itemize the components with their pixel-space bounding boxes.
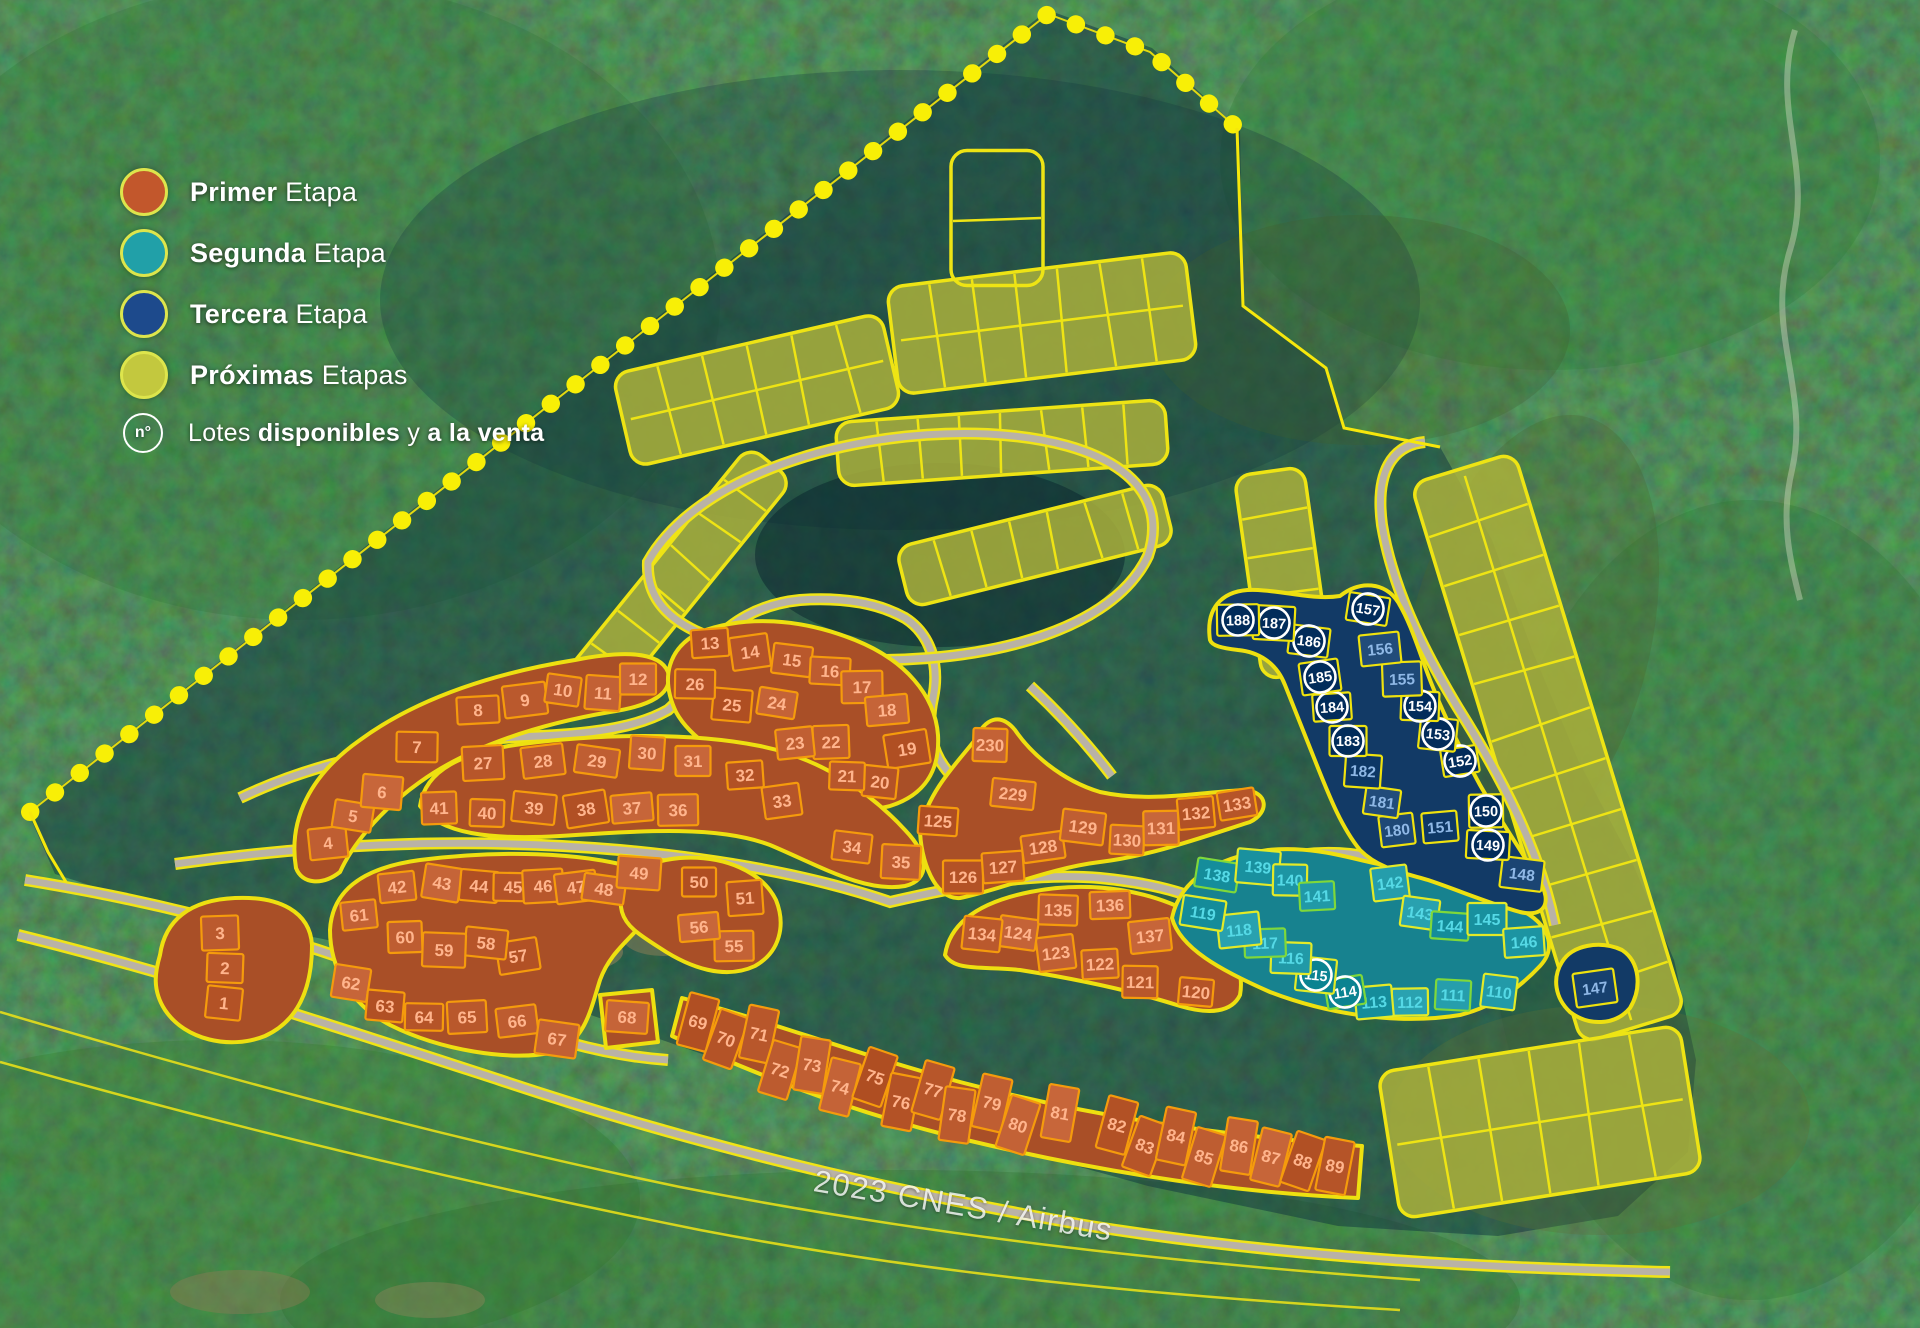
primer-swatch-icon: [120, 168, 168, 216]
lot-40[interactable]: 40: [470, 799, 505, 827]
legend-item-proximas: Próximas Etapas: [120, 351, 544, 399]
lot-67[interactable]: 67: [534, 1019, 579, 1058]
lot-number: 28: [533, 751, 554, 772]
lot-number: 14: [739, 642, 761, 664]
lot-4[interactable]: 4: [307, 826, 348, 861]
lot-number: 6: [376, 783, 387, 803]
lot-number: 20: [870, 772, 891, 793]
lot-39[interactable]: 39: [511, 791, 557, 825]
lot-134[interactable]: 134: [961, 916, 1002, 953]
lot-14[interactable]: 14: [729, 633, 771, 671]
lot-63[interactable]: 63: [365, 989, 404, 1022]
lot-number: 229: [998, 784, 1028, 806]
lot-19[interactable]: 19: [883, 729, 931, 769]
lot-number: 45: [503, 878, 522, 897]
lot-number: 67: [546, 1029, 567, 1050]
lot-36[interactable]: 36: [658, 794, 699, 826]
lot-number: 18: [877, 700, 898, 721]
lot-number: 139: [1244, 859, 1272, 878]
lot-111[interactable]: 111: [1435, 979, 1472, 1011]
lot-number: 110: [1485, 983, 1513, 1003]
lot-number: 55: [724, 937, 743, 956]
lot-number: 17: [852, 678, 871, 697]
lot-number: 76: [890, 1091, 912, 1113]
lot-122[interactable]: 122: [1081, 949, 1118, 980]
lot-10[interactable]: 10: [544, 673, 582, 706]
lot-49[interactable]: 49: [616, 856, 661, 891]
lot-number: 186: [1296, 633, 1322, 652]
legend-label: Segunda Etapa: [190, 238, 386, 269]
lot-185[interactable]: 185: [1298, 658, 1341, 695]
lot-number: 73: [801, 1055, 823, 1077]
lot-62[interactable]: 62: [331, 964, 372, 1002]
lot-number: 11: [593, 684, 612, 704]
lot-number: 154: [1408, 699, 1433, 716]
lot-6[interactable]: 6: [361, 774, 404, 810]
lot-number: 156: [1366, 640, 1394, 660]
lot-number: 39: [524, 798, 545, 819]
lot-144[interactable]: 144: [1430, 911, 1470, 941]
lot-number-circle-icon: n°: [123, 413, 163, 453]
lot-11[interactable]: 11: [584, 675, 621, 711]
lot-number: 60: [395, 928, 415, 948]
lot-number: 25: [722, 695, 743, 716]
lot-137[interactable]: 137: [1128, 918, 1172, 954]
lot-number: 187: [1261, 616, 1286, 633]
segunda-swatch-icon: [120, 229, 168, 277]
legend-item-tercera: Tercera Etapa: [120, 290, 544, 338]
lot-156[interactable]: 156: [1358, 631, 1401, 666]
lot-112[interactable]: 112: [1392, 988, 1428, 1016]
lot-184[interactable]: 184: [1312, 690, 1352, 724]
lot-110[interactable]: 110: [1480, 974, 1518, 1011]
lot-number: 35: [891, 853, 911, 873]
lot-136[interactable]: 136: [1090, 891, 1131, 919]
lot-123[interactable]: 123: [1036, 934, 1077, 972]
lot-number: 188: [1226, 613, 1250, 629]
lot-145[interactable]: 145: [1468, 903, 1507, 935]
lot-number: 111: [1440, 987, 1466, 1005]
lot-127[interactable]: 127: [982, 851, 1025, 884]
lot-146[interactable]: 146: [1503, 926, 1545, 958]
lot-42[interactable]: 42: [378, 871, 417, 904]
site-plan-map: 1234567891011121314151617181920212223242…: [0, 0, 1920, 1328]
lot-number: 43: [431, 873, 453, 895]
lot-number: 65: [457, 1008, 477, 1028]
lot-24[interactable]: 24: [756, 687, 798, 720]
lot-number: 112: [1397, 995, 1423, 1012]
lot-number: 62: [340, 973, 362, 995]
lot-number: 1: [218, 994, 229, 1014]
lot-number: 78: [946, 1105, 967, 1126]
lot-number: 185: [1307, 669, 1333, 688]
lot-64[interactable]: 64: [405, 1003, 443, 1031]
lot-58[interactable]: 58: [464, 926, 509, 959]
lot-number: 141: [1303, 888, 1331, 906]
lot-7[interactable]: 7: [396, 732, 438, 763]
lot-number: 149: [1475, 838, 1500, 855]
lot-number: 183: [1336, 734, 1360, 750]
lot-23[interactable]: 23: [775, 726, 815, 760]
lot-number: 59: [434, 941, 454, 961]
lot-number: 19: [896, 739, 918, 761]
lot-135[interactable]: 135: [1038, 894, 1078, 925]
lot-number: 120: [1181, 982, 1211, 1003]
lot-26[interactable]: 26: [675, 669, 716, 699]
lot-number: 123: [1041, 942, 1071, 964]
lot-number: 134: [967, 924, 998, 946]
lot-number: 41: [429, 799, 449, 819]
legend-item-segunda: Segunda Etapa: [120, 229, 544, 277]
lot-number: 57: [507, 946, 529, 968]
lot-number: 146: [1510, 934, 1538, 953]
lot-number: 66: [507, 1011, 528, 1032]
lot-27[interactable]: 27: [462, 745, 505, 781]
lot-number: 61: [349, 905, 370, 926]
lot-number: 142: [1376, 874, 1405, 894]
lot-number: 144: [1436, 918, 1464, 937]
lot-61[interactable]: 61: [340, 899, 378, 931]
lot-number: 131: [1147, 819, 1176, 838]
lot-number: 38: [575, 799, 597, 821]
lot-43[interactable]: 43: [421, 863, 463, 902]
lot-25[interactable]: 25: [711, 687, 753, 722]
lot-number: 22: [821, 733, 841, 753]
lot-181[interactable]: 181: [1363, 786, 1402, 819]
lot-number: 129: [1068, 816, 1098, 838]
lot-number: 145: [1474, 912, 1501, 929]
lot-2[interactable]: 2: [207, 953, 244, 983]
lot-78[interactable]: 78: [938, 1086, 975, 1144]
lot-51[interactable]: 51: [726, 880, 763, 916]
lot-60[interactable]: 60: [387, 921, 422, 953]
lot-120[interactable]: 120: [1178, 977, 1214, 1007]
legend-label: Tercera Etapa: [190, 299, 368, 330]
lot-13[interactable]: 13: [691, 628, 730, 659]
lot-126[interactable]: 126: [943, 861, 983, 894]
lot-number: 151: [1426, 818, 1454, 837]
legend-available-note: n°Lotes disponibles y a la venta: [120, 413, 544, 453]
legend-item-primer: Primer Etapa: [120, 168, 544, 216]
lot-128[interactable]: 128: [1020, 831, 1065, 864]
lot-number: 7: [412, 738, 422, 757]
lot-number: 155: [1389, 671, 1416, 689]
lot-number: 2: [220, 959, 230, 978]
lot-number: 181: [1368, 793, 1396, 813]
lot-1[interactable]: 1: [205, 985, 243, 1020]
lot-18[interactable]: 18: [865, 694, 909, 727]
lot-number: 23: [785, 733, 806, 754]
lot-number: 21: [837, 767, 857, 787]
lot-number: 130: [1112, 830, 1141, 850]
lot-number: 16: [820, 662, 840, 682]
lot-number: 148: [1508, 865, 1536, 885]
lot-129[interactable]: 129: [1060, 808, 1107, 845]
lot-131[interactable]: 131: [1143, 811, 1179, 846]
lot-121[interactable]: 121: [1122, 966, 1158, 999]
lot-20[interactable]: 20: [861, 765, 898, 799]
lot-number: 153: [1425, 726, 1451, 744]
lot-number: 24: [766, 693, 788, 715]
lot-188[interactable]: 188: [1217, 604, 1260, 636]
lot-138[interactable]: 138: [1194, 857, 1240, 892]
lot-number: 121: [1126, 973, 1155, 992]
lot-number: 37: [622, 798, 643, 819]
lot-22[interactable]: 22: [812, 725, 849, 759]
lot-number: 122: [1085, 954, 1114, 974]
lot-number: 36: [668, 801, 687, 820]
lot-66[interactable]: 66: [495, 1004, 538, 1038]
lot-number: 51: [735, 888, 755, 908]
legend-label: Próximas Etapas: [190, 360, 408, 391]
lot-119[interactable]: 119: [1179, 895, 1226, 931]
lot-141[interactable]: 141: [1299, 881, 1335, 911]
tercera-swatch-icon: [120, 290, 168, 338]
lot-number: 56: [689, 917, 710, 938]
lot-number: 118: [1225, 921, 1253, 941]
lot-number: 27: [473, 754, 493, 774]
lot-151[interactable]: 151: [1421, 811, 1458, 844]
lot-number: 8: [473, 701, 483, 720]
lot-149[interactable]: 149: [1466, 828, 1511, 861]
lot-183[interactable]: 183: [1330, 726, 1367, 757]
lot-number: 13: [700, 633, 720, 653]
lot-number: 26: [685, 675, 704, 694]
lot-number: 40: [477, 804, 497, 824]
lot-148[interactable]: 148: [1499, 856, 1544, 892]
lot-number: 182: [1349, 763, 1376, 782]
lot-229[interactable]: 229: [990, 778, 1036, 810]
lot-68[interactable]: 68: [605, 1000, 649, 1034]
lot-150[interactable]: 150: [1469, 794, 1504, 828]
lot-number: 3: [215, 924, 225, 943]
lot-number: 136: [1096, 896, 1125, 916]
lot-number: 49: [629, 863, 649, 883]
lot-number: 150: [1474, 804, 1498, 820]
lot-3[interactable]: 3: [201, 915, 239, 950]
lot-number: 125: [923, 811, 953, 832]
lot-35[interactable]: 35: [881, 844, 922, 880]
lot-12[interactable]: 12: [620, 664, 656, 695]
lot-number: 71: [748, 1023, 770, 1046]
lot-230[interactable]: 230: [972, 728, 1007, 762]
lot-133[interactable]: 133: [1217, 787, 1258, 820]
lot-number: 230: [975, 736, 1004, 756]
lot-28[interactable]: 28: [520, 743, 565, 779]
lot-9[interactable]: 9: [502, 681, 549, 718]
lot-number: 135: [1043, 901, 1072, 921]
lot-32[interactable]: 32: [726, 760, 764, 789]
lot-30[interactable]: 30: [629, 735, 665, 770]
lot-number: 128: [1028, 836, 1059, 859]
lot-number: 44: [469, 876, 490, 897]
lot-29[interactable]: 29: [574, 744, 620, 778]
lot-number: 46: [533, 877, 553, 897]
lot-number: 48: [593, 879, 614, 900]
lot-number: 86: [1228, 1136, 1250, 1158]
lot-65[interactable]: 65: [447, 1000, 488, 1034]
lot-number: 42: [387, 877, 408, 898]
lot-number: 58: [476, 933, 497, 954]
lot-number: 89: [1324, 1155, 1346, 1177]
lot-number: 29: [586, 751, 607, 772]
lot-number: 132: [1181, 803, 1211, 824]
lot-147[interactable]: 147: [1572, 968, 1617, 1007]
lot-number: 30: [637, 743, 657, 763]
lot-number: 31: [684, 752, 703, 771]
lot-37[interactable]: 37: [610, 792, 653, 823]
lot-number: 68: [617, 1007, 637, 1027]
lot-132[interactable]: 132: [1177, 796, 1216, 830]
lot-number: 33: [771, 791, 792, 812]
proximas-swatch-icon: [120, 351, 168, 399]
lot-38[interactable]: 38: [563, 789, 610, 828]
lot-number: 124: [1003, 922, 1034, 945]
lot-number: 180: [1383, 821, 1411, 841]
lot-number: 34: [841, 837, 863, 858]
lot-number: 64: [414, 1008, 434, 1027]
lot-number: 12: [629, 670, 648, 689]
lot-number: 63: [375, 996, 396, 1017]
legend-label: Lotes disponibles y a la venta: [188, 419, 544, 448]
lot-number: 81: [1049, 1103, 1071, 1125]
lot-number: 10: [552, 680, 573, 701]
lot-50[interactable]: 50: [682, 868, 716, 897]
lot-15[interactable]: 15: [771, 643, 813, 678]
lot-125[interactable]: 125: [918, 806, 959, 837]
lot-number: 147: [1581, 979, 1609, 999]
legend-label: Primer Etapa: [190, 177, 357, 208]
lot-155[interactable]: 155: [1382, 661, 1422, 696]
lot-number: 126: [949, 868, 977, 887]
lot-number: 137: [1135, 926, 1165, 948]
lot-number: 32: [735, 765, 755, 785]
lot-21[interactable]: 21: [829, 761, 865, 790]
lot-182[interactable]: 182: [1344, 753, 1382, 788]
lot-number: 15: [781, 650, 802, 671]
lot-33[interactable]: 33: [761, 783, 802, 820]
lot-number: 184: [1319, 699, 1344, 717]
lot-34[interactable]: 34: [831, 830, 872, 863]
lot-41[interactable]: 41: [421, 791, 457, 824]
lot-59[interactable]: 59: [422, 932, 466, 967]
lot-31[interactable]: 31: [676, 746, 711, 776]
legend: Primer EtapaSegunda EtapaTercera EtapaPr…: [120, 168, 544, 466]
lot-number: 50: [690, 873, 709, 892]
lot-56[interactable]: 56: [678, 912, 720, 942]
lot-130[interactable]: 130: [1109, 825, 1144, 856]
lot-number: 127: [988, 857, 1018, 878]
lot-8[interactable]: 8: [456, 695, 499, 724]
